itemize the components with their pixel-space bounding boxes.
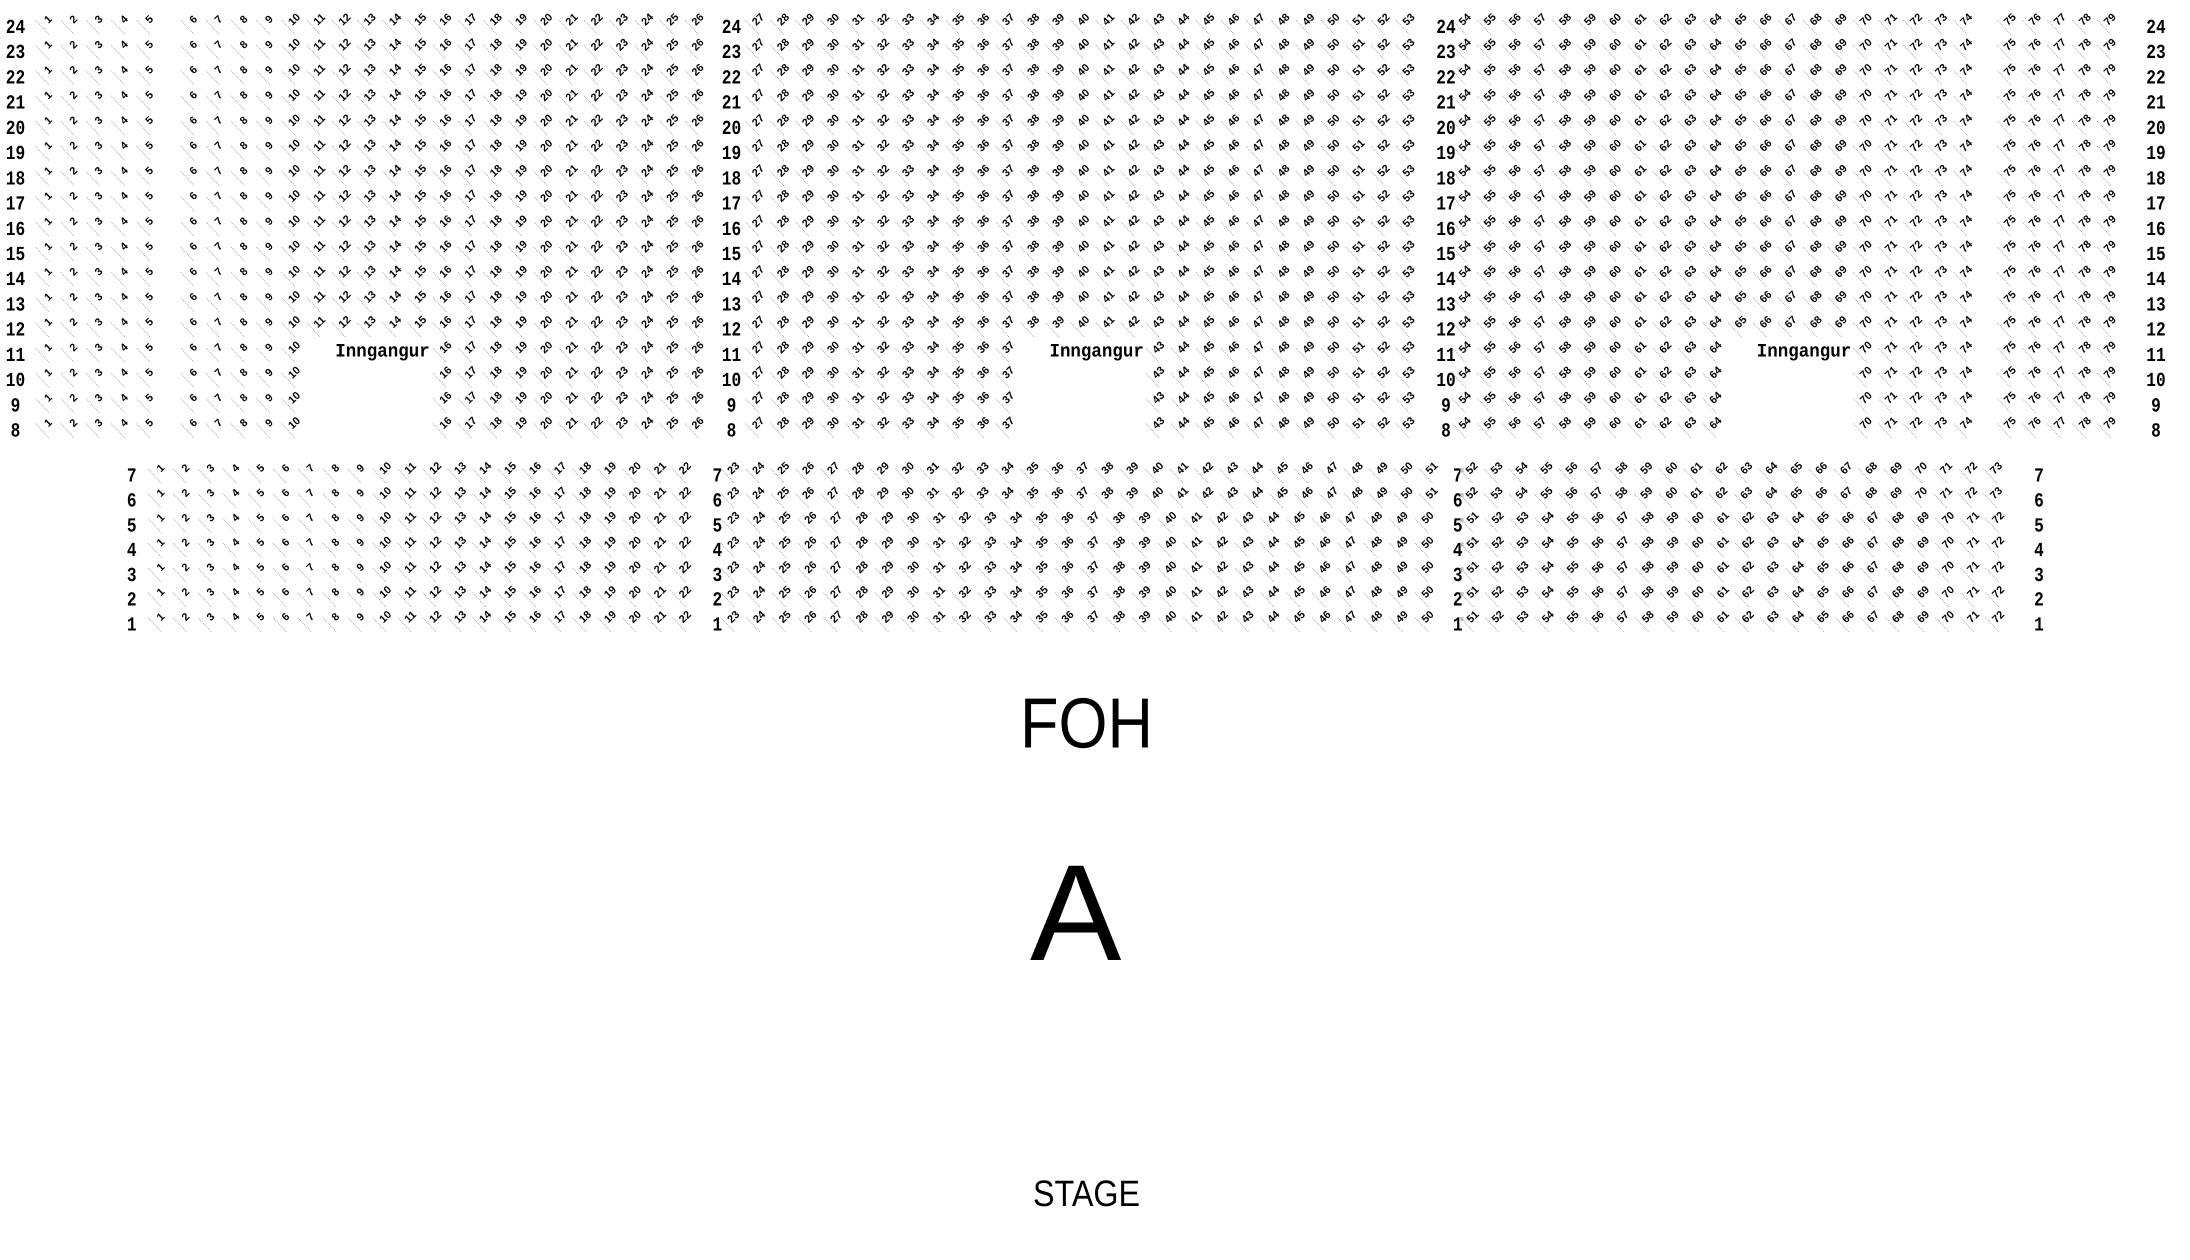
svg-text:STAGE: STAGE [1033,1173,1140,1214]
svg-text:8: 8 [727,421,737,444]
svg-text:18: 18 [2146,168,2165,191]
svg-text:2: 2 [127,590,137,613]
svg-text:14: 14 [722,269,741,292]
svg-text:8: 8 [11,421,21,444]
svg-text:16: 16 [6,219,25,242]
svg-text:11: 11 [6,345,25,368]
svg-text:A: A [1030,837,1122,990]
svg-text:8: 8 [1441,421,1451,444]
svg-text:24: 24 [2146,17,2165,40]
svg-text:20: 20 [722,118,741,141]
svg-text:17: 17 [722,194,741,217]
svg-text:13: 13 [2146,294,2165,317]
svg-text:12: 12 [2146,320,2165,343]
svg-text:11: 11 [2146,345,2165,368]
svg-text:20: 20 [2146,118,2165,141]
svg-text:11: 11 [722,345,741,368]
svg-text:12: 12 [6,320,25,343]
svg-text:21: 21 [722,93,741,116]
svg-text:12: 12 [722,320,741,343]
svg-text:5: 5 [2034,515,2044,538]
svg-text:19: 19 [6,143,25,166]
svg-text:15: 15 [722,244,741,267]
svg-text:5: 5 [127,515,137,538]
svg-text:14: 14 [2146,269,2165,292]
svg-text:10: 10 [2146,370,2165,393]
svg-text:9: 9 [2151,395,2161,418]
svg-text:10: 10 [6,370,25,393]
svg-text:9: 9 [1441,395,1451,418]
svg-text:16: 16 [2146,219,2165,242]
svg-text:23: 23 [722,42,741,65]
svg-text:16: 16 [722,219,741,242]
svg-text:6: 6 [2034,491,2044,514]
svg-text:24: 24 [6,17,25,40]
svg-text:22: 22 [6,67,25,90]
svg-text:23: 23 [6,42,25,65]
svg-text:19: 19 [722,143,741,166]
svg-text:4: 4 [2034,540,2044,563]
svg-text:1: 1 [2034,614,2044,637]
svg-text:22: 22 [722,67,741,90]
svg-text:FOH: FOH [1020,685,1153,764]
svg-text:3: 3 [127,565,137,588]
svg-text:4: 4 [127,540,137,563]
svg-text:10: 10 [722,370,741,393]
svg-text:13: 13 [722,294,741,317]
svg-text:15: 15 [2146,244,2165,267]
svg-text:8: 8 [2151,421,2161,444]
svg-text:15: 15 [6,244,25,267]
svg-text:17: 17 [2146,194,2165,217]
svg-text:Inngangur: Inngangur [1757,341,1852,363]
svg-text:1: 1 [127,614,137,637]
svg-text:21: 21 [6,93,25,116]
svg-text:24: 24 [722,17,741,40]
svg-text:19: 19 [2146,143,2165,166]
svg-text:Inngangur: Inngangur [335,341,430,363]
svg-text:Inngangur: Inngangur [1049,341,1144,363]
svg-text:18: 18 [6,168,25,191]
svg-text:17: 17 [6,194,25,217]
svg-text:9: 9 [11,395,21,418]
svg-text:13: 13 [6,294,25,317]
svg-text:23: 23 [2146,42,2165,65]
svg-text:14: 14 [6,269,25,292]
svg-text:7: 7 [2034,466,2044,489]
svg-text:21: 21 [2146,93,2165,116]
svg-text:7: 7 [127,466,137,489]
svg-text:22: 22 [2146,67,2165,90]
svg-text:9: 9 [727,395,737,418]
svg-text:6: 6 [127,491,137,514]
svg-text:18: 18 [722,168,741,191]
svg-text:2: 2 [2034,590,2044,613]
svg-text:3: 3 [2034,565,2044,588]
svg-text:20: 20 [6,118,25,141]
